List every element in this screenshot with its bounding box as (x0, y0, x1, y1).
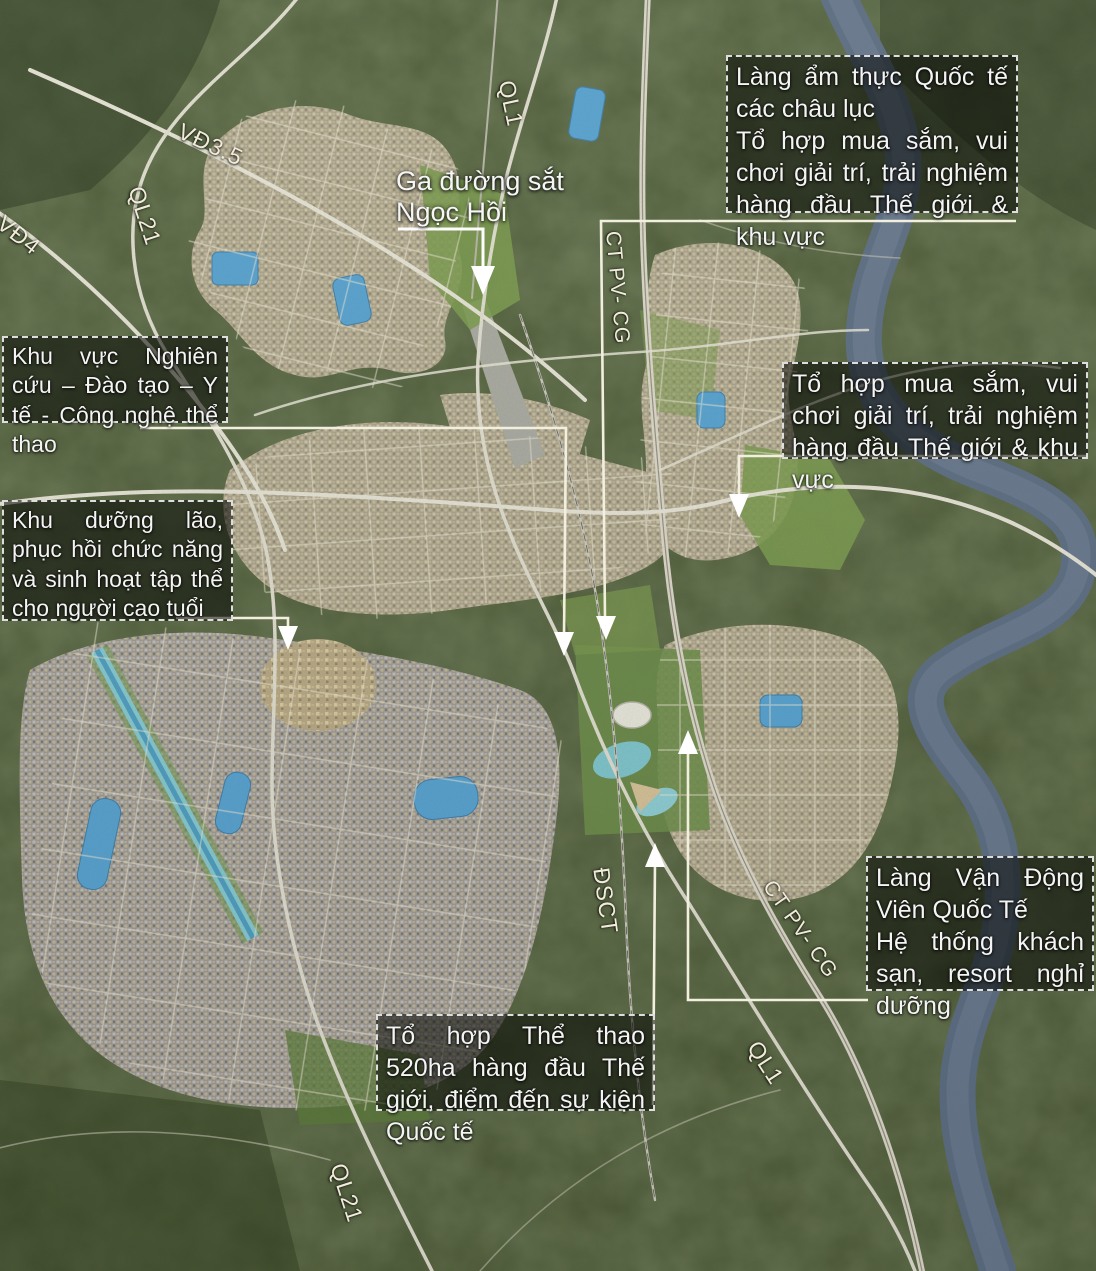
callout-elderly-zone: Khu dưỡng lão, phục hồi chức năng và sin… (2, 500, 233, 621)
callout-text: Làng ẩm thực Quốc tế các châu lục (736, 61, 1008, 125)
callout-text: Khu vực Nghiên cứu – Đào tạo – Y tế - Cô… (12, 342, 218, 460)
callout-text: Khu dưỡng lão, phục hồi chức năng và sin… (12, 506, 223, 624)
callout-text: Tổ hợp mua sắm, vui chơi giải trí, trải … (792, 368, 1078, 496)
station-label-line1: Ga đường sắt (396, 166, 564, 197)
callout-research-zone: Khu vực Nghiên cứu – Đào tạo – Y tế - Cô… (2, 336, 228, 423)
station-label-line2: Ngọc Hồi (396, 197, 564, 228)
callout-athletes-village: Làng Vận Động Viên Quốc Tế Hệ thống khác… (866, 856, 1094, 991)
callout-text: Hệ thống khách sạn, resort nghỉ dưỡng (876, 926, 1084, 1022)
callout-shopping-complex: Tổ hợp mua sắm, vui chơi giải trí, trải … (782, 362, 1088, 459)
station-label: Ga đường sắt Ngọc Hồi (396, 166, 564, 228)
callout-text: Tổ hợp mua sắm, vui chơi giải trí, trải … (736, 125, 1008, 253)
planning-map-screenshot: Làng ẩm thực Quốc tế các châu lục Tổ hợp… (0, 0, 1096, 1271)
callout-text: Làng Vận Động Viên Quốc Tế (876, 862, 1084, 926)
callout-food-village: Làng ẩm thực Quốc tế các châu lục Tổ hợp… (726, 55, 1018, 213)
callout-sports-complex: Tổ hợp Thể thao 520ha hàng đầu Thế giới,… (376, 1014, 655, 1111)
callout-text: Tổ hợp Thể thao 520ha hàng đầu Thế giới,… (386, 1020, 645, 1148)
